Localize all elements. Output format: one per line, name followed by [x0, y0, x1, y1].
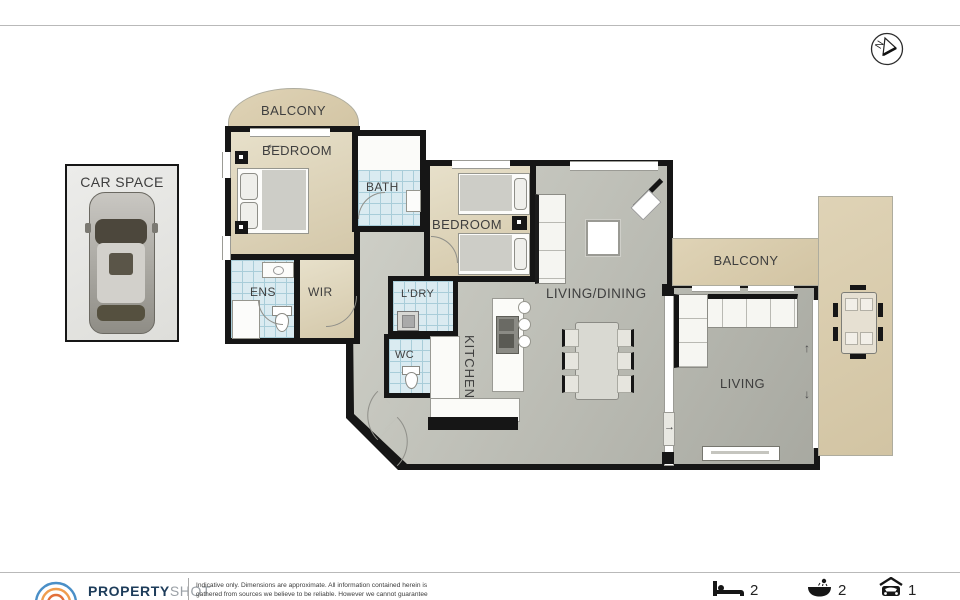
- ens-label: ENS: [250, 285, 276, 299]
- outdoor-chair: [845, 298, 858, 311]
- bed-pillow-1: [240, 173, 258, 200]
- oven-top: [499, 319, 514, 331]
- footer-logo-divider: [188, 578, 189, 600]
- bed-blanket: [460, 235, 512, 271]
- top-divider: [0, 25, 960, 26]
- balcony-slider-window: [250, 128, 330, 137]
- bed-icon: [712, 580, 746, 598]
- car-sunroof: [109, 253, 133, 275]
- bar-stool-3: [518, 335, 531, 348]
- outdoor-chair: [860, 298, 873, 311]
- door-arrow-icon: →: [664, 421, 675, 433]
- chair-back: [833, 303, 838, 317]
- kitchen-lower-wall: [428, 417, 518, 430]
- washing-machine: [397, 311, 419, 331]
- dining-table: [575, 322, 619, 400]
- slider-arrow-up-icon: ↑: [804, 342, 810, 354]
- slider-arrow-down-icon: ↓: [804, 388, 810, 400]
- chair-back: [878, 327, 883, 341]
- nightstand-2: [235, 221, 248, 234]
- ens-basin: [273, 266, 284, 275]
- wall-post: [662, 452, 674, 464]
- car-space-label: CAR SPACE: [67, 174, 177, 190]
- dining-chair: [562, 375, 579, 393]
- dining-chair: [617, 352, 634, 370]
- floorplan-page: N CAR SPACE BALCONY BEDROOM ENS WIR ←: [0, 0, 960, 600]
- brand-name: PROPERTYSHOT: [88, 583, 211, 599]
- bed-count: 2: [750, 582, 758, 599]
- tv-cabinet-detail: [711, 451, 769, 454]
- dining-chair: [617, 329, 634, 347]
- chair-back: [850, 354, 866, 359]
- bath-icon: [806, 577, 834, 599]
- laundry-label: L'DRY: [401, 288, 434, 300]
- bed-pillow: [514, 238, 527, 270]
- washer-door: [402, 315, 415, 328]
- propertyshot-logo-icon: [28, 576, 84, 600]
- brand-bold: PROPERTY: [88, 583, 170, 599]
- dining-chair: [562, 352, 579, 370]
- bed-blanket: [460, 175, 512, 211]
- tv-cabinet: [702, 446, 780, 461]
- nightstand-1: [235, 151, 248, 164]
- nightstand-dot: [239, 225, 243, 229]
- bed-blanket: [262, 170, 306, 230]
- balcony-right-label: BALCONY: [673, 253, 819, 268]
- bar-stool-1: [518, 301, 531, 314]
- nightstand-dot: [239, 155, 243, 159]
- ens-vanity: [262, 262, 294, 278]
- car-rear-window: [97, 305, 145, 321]
- single-bed-2: [458, 233, 530, 275]
- footer-divider: [0, 572, 960, 573]
- car-windshield: [95, 219, 147, 245]
- car-mirror-left: [85, 223, 91, 233]
- wc-label: WC: [395, 349, 414, 361]
- bedroom-second-window: [452, 160, 510, 169]
- bath-shower-floor: [358, 136, 420, 170]
- balcony-right-horizontal: BALCONY: [672, 238, 819, 286]
- car-icon: [878, 577, 904, 599]
- car-top-view: [89, 192, 155, 334]
- disclaimer-line-2: gathered from sources we believe to be r…: [196, 591, 428, 600]
- car-space-box: CAR SPACE: [65, 164, 179, 342]
- disclaimer: Indicative only. Dimensions are approxim…: [196, 582, 428, 599]
- ens-shower: [232, 300, 260, 339]
- dining-chair: [562, 329, 579, 347]
- kitchen-label: KITCHEN: [462, 335, 477, 399]
- living-dining-window: [570, 161, 658, 171]
- bedroom-main-window-1: [222, 152, 231, 178]
- chair-back: [850, 285, 866, 290]
- car-mirror-right: [152, 223, 158, 233]
- oven-door: [499, 334, 514, 348]
- dining-chair: [617, 375, 634, 393]
- compass-icon: N: [866, 28, 908, 70]
- coffee-table: [586, 220, 620, 256]
- chair-back: [878, 303, 883, 317]
- outdoor-chair: [845, 332, 858, 345]
- chair-back: [833, 327, 838, 341]
- sofa-living-dining: [535, 194, 566, 284]
- bedroom-second-label: BEDROOM: [432, 217, 502, 232]
- nightstand-dot: [517, 220, 521, 224]
- l-sofa-vertical: [674, 294, 708, 368]
- single-bed-1: [458, 173, 530, 215]
- bath-count: 2: [838, 582, 846, 599]
- disclaimer-line-1: Indicative only. Dimensions are approxim…: [196, 582, 428, 591]
- bath-basin: [406, 190, 421, 212]
- living-label: LIVING: [720, 376, 765, 391]
- outdoor-chair: [860, 332, 873, 345]
- balcony-top-label: BALCONY: [229, 103, 358, 118]
- slider-arrow-icon: ←: [262, 138, 287, 150]
- car-count: 1: [908, 582, 916, 599]
- nightstand-3: [512, 216, 527, 230]
- bed-pillow: [514, 178, 527, 210]
- bedroom-main-window-2: [222, 236, 231, 260]
- bar-stool-2: [518, 318, 531, 331]
- kitchen-oven: [496, 316, 519, 354]
- living-dining-label: LIVING/DINING: [546, 286, 646, 301]
